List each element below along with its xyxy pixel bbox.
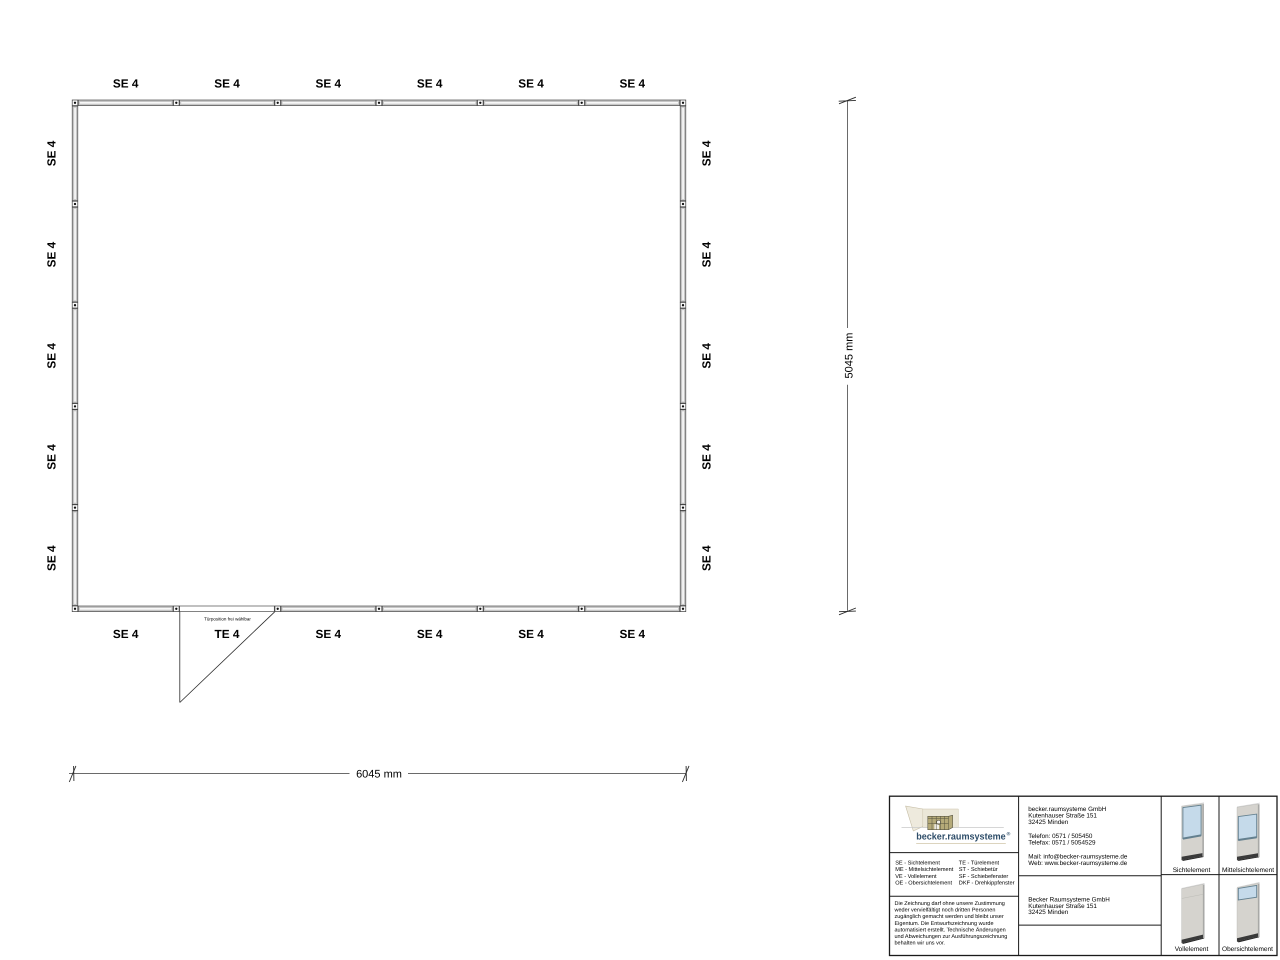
- svg-text:SE 4: SE 4: [620, 627, 646, 641]
- svg-text:becker.raumsysteme: becker.raumsysteme: [916, 832, 1006, 843]
- svg-text:SE 4: SE 4: [700, 545, 714, 571]
- svg-text:Telefax: 0571 / 5054529: Telefax: 0571 / 5054529: [1028, 840, 1096, 847]
- svg-text:OE - Obersichtelement: OE - Obersichtelement: [895, 880, 952, 887]
- svg-text:SE 4: SE 4: [417, 627, 443, 641]
- svg-text:ME - Mittelsichtelement: ME - Mittelsichtelement: [895, 866, 954, 873]
- svg-text:SE 4: SE 4: [700, 444, 714, 470]
- svg-text:TE - Türelement: TE - Türelement: [959, 859, 1000, 866]
- svg-text:SF - Schiebefenster: SF - Schiebefenster: [959, 873, 1009, 880]
- svg-text:ST - Schiebetür: ST - Schiebetür: [959, 866, 998, 873]
- svg-text:Obersichtelement: Obersichtelement: [1222, 946, 1273, 953]
- svg-text:32425 Minden: 32425 Minden: [1028, 909, 1068, 916]
- svg-text:Mittelsichtelement: Mittelsichtelement: [1222, 867, 1274, 874]
- svg-text:SE 4: SE 4: [113, 627, 139, 641]
- svg-text:Vollelement: Vollelement: [1175, 946, 1209, 953]
- svg-text:SE 4: SE 4: [417, 76, 443, 90]
- svg-text:SE 4: SE 4: [316, 76, 342, 90]
- svg-text:TE 4: TE 4: [215, 627, 240, 641]
- svg-text:DKF - Drehkippfenster: DKF - Drehkippfenster: [959, 880, 1015, 887]
- svg-text:weder vervielfältigt noch drit: weder vervielfältigt noch dritten Person…: [894, 907, 996, 913]
- svg-text:zugänglich gemacht werden und: zugänglich gemacht werden und bleibt uns…: [895, 914, 1004, 920]
- svg-text:Sichtelement: Sichtelement: [1173, 867, 1211, 874]
- svg-text:SE 4: SE 4: [45, 241, 59, 267]
- svg-text:6045 mm: 6045 mm: [356, 768, 402, 780]
- svg-text:SE 4: SE 4: [113, 76, 139, 90]
- svg-text:®: ®: [1007, 832, 1011, 838]
- svg-text:SE 4: SE 4: [45, 444, 59, 470]
- svg-text:SE 4: SE 4: [518, 76, 544, 90]
- svg-text:Türposition frei wählbar: Türposition frei wählbar: [204, 617, 251, 622]
- svg-text:SE 4: SE 4: [700, 140, 714, 166]
- svg-text:SE 4: SE 4: [45, 140, 59, 166]
- svg-text:SE 4: SE 4: [700, 241, 714, 267]
- svg-text:SE 4: SE 4: [45, 343, 59, 369]
- svg-text:SE 4: SE 4: [700, 343, 714, 369]
- svg-text:Web: www.becker-raumsysteme.de: Web: www.becker-raumsysteme.de: [1028, 860, 1127, 867]
- svg-text:SE 4: SE 4: [518, 627, 544, 641]
- svg-text:32425 Minden: 32425 Minden: [1028, 819, 1068, 826]
- svg-text:5045 mm: 5045 mm: [844, 333, 856, 379]
- svg-text:Die Zeichnung darf ohne unsere: Die Zeichnung darf ohne unsere Zustimmun…: [895, 901, 1005, 907]
- svg-text:SE 4: SE 4: [45, 545, 59, 571]
- svg-text:behalten wir uns vor.: behalten wir uns vor.: [895, 941, 946, 947]
- svg-text:und Abweichungen zur Ausführun: und Abweichungen zur Ausführungszeichnun…: [895, 934, 1008, 940]
- svg-text:SE - Sichtelement: SE - Sichtelement: [895, 859, 940, 866]
- svg-text:SE 4: SE 4: [214, 76, 240, 90]
- svg-text:SE 4: SE 4: [620, 76, 646, 90]
- svg-text:automatisiert erstellt. Techni: automatisiert erstellt. Technische Änder…: [895, 926, 1006, 933]
- svg-text:Eigentum. Die Entwurfszeichnun: Eigentum. Die Entwurfszeichnung wurde: [895, 921, 994, 927]
- svg-text:VE - Vollelement: VE - Vollelement: [895, 873, 937, 880]
- svg-text:SE 4: SE 4: [316, 627, 342, 641]
